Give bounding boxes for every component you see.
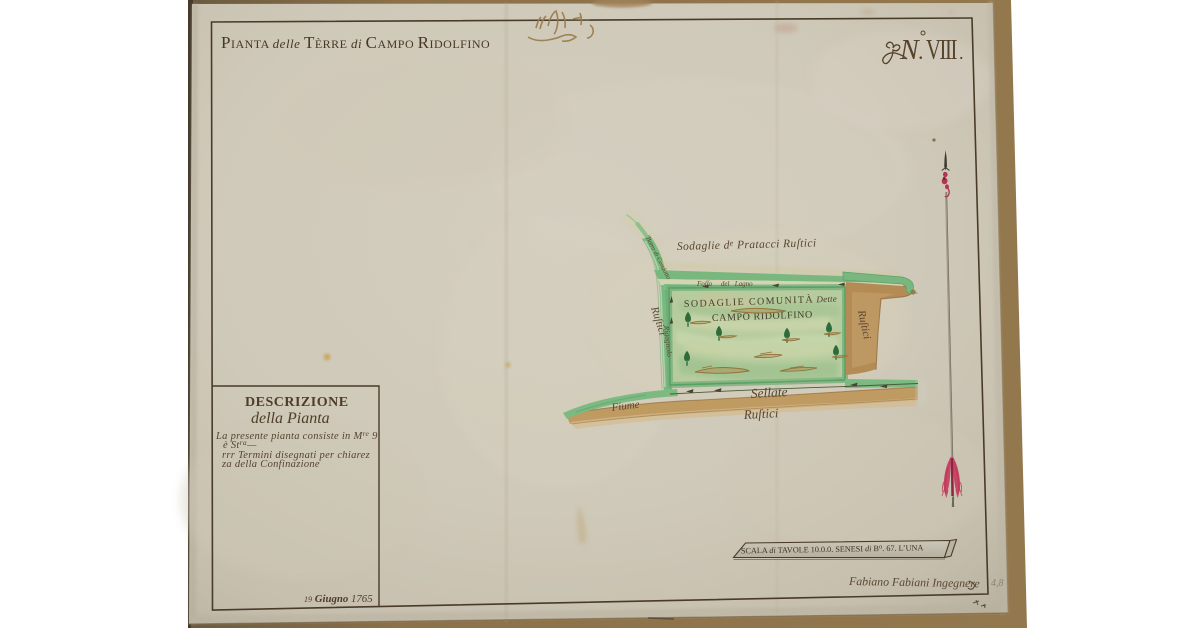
svg-text:za della Confinazione: za della Confinazione bbox=[221, 459, 320, 470]
svg-text:Fabiano Fabiani Ingegnere: Fabiano Fabiani Ingegnere bbox=[848, 574, 980, 590]
svg-text:19 Giugno 1765: 19 Giugno 1765 bbox=[304, 593, 373, 605]
svg-text:della Pianta: della Pianta bbox=[251, 410, 330, 427]
svg-text:Sellate: Sellate bbox=[750, 384, 787, 401]
svg-text:Ruſtici: Ruſtici bbox=[742, 405, 779, 422]
svg-text:.: . bbox=[959, 43, 964, 63]
svg-text:VIII: VIII bbox=[926, 34, 957, 66]
svg-text:DESCRIZIONE: DESCRIZIONE bbox=[245, 395, 349, 410]
svg-text:.: . bbox=[918, 39, 924, 64]
svg-text:N: N bbox=[899, 35, 920, 66]
svg-text:4,8: 4,8 bbox=[991, 578, 1004, 589]
